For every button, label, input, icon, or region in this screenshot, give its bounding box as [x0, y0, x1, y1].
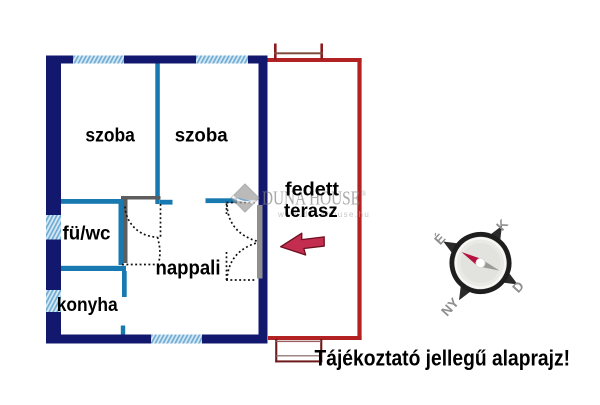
svg-text:fü/wc: fü/wc [63, 223, 111, 245]
svg-text:nappali: nappali [156, 257, 221, 280]
svg-text:szoba: szoba [85, 126, 135, 147]
svg-text:szoba: szoba [175, 126, 228, 147]
svg-text:Tájékoztató jellegű alaprajz!: Tájékoztató jellegű alaprajz! [315, 346, 571, 371]
svg-text:terasz: terasz [284, 201, 338, 222]
svg-text:fedett: fedett [285, 180, 340, 201]
svg-text:konyha: konyha [57, 294, 118, 316]
svg-text:®: ® [361, 190, 367, 198]
